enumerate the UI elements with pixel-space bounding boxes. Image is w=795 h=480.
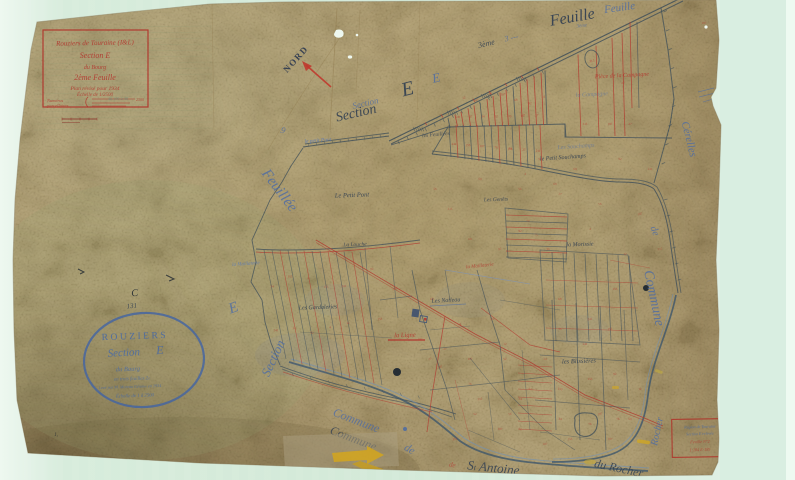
svg-text:2ème Feuille: 2ème Feuille	[74, 73, 116, 82]
svg-text:du Bourg: du Bourg	[84, 65, 106, 71]
svg-text:40-100-2-48: 40-100-2-48	[108, 96, 128, 101]
svg-text:241: 241	[648, 167, 653, 171]
svg-text:153: 153	[567, 437, 572, 441]
svg-text:la Morissie: la Morissie	[566, 242, 594, 249]
svg-text:315: 315	[583, 122, 588, 126]
svg-text:1:184 E-185: 1:184 E-185	[689, 447, 710, 453]
svg-text:187: 187	[608, 122, 613, 126]
svg-text:27: 27	[522, 148, 526, 152]
svg-text:315: 315	[448, 207, 453, 211]
svg-text:315: 315	[657, 247, 663, 251]
svg-text:2500: 2500	[136, 97, 144, 102]
svg-text:les Blissières: les Blissières	[562, 357, 597, 365]
svg-text:la Ligne: la Ligne	[394, 332, 416, 340]
svg-text:187: 187	[608, 437, 614, 441]
svg-text:92: 92	[473, 412, 477, 416]
svg-text:Section: Section	[107, 346, 140, 360]
svg-text:153: 153	[607, 327, 613, 332]
svg-text:187: 187	[520, 113, 526, 118]
svg-text:241: 241	[452, 142, 457, 146]
svg-text:E: E	[155, 343, 165, 357]
svg-text:68: 68	[553, 182, 557, 186]
svg-text:Section E relevée: Section E relevée	[686, 431, 714, 437]
svg-text:153: 153	[465, 143, 470, 147]
svg-text:68: 68	[468, 237, 472, 241]
svg-text:du Bourg: du Bourg	[116, 366, 141, 374]
svg-text:de: de	[448, 461, 456, 470]
svg-text:241: 241	[456, 115, 462, 120]
svg-text:Rouziers de Touraine (I&L): Rouziers de Touraine (I&L)	[55, 38, 135, 47]
svg-text:parcellaires: parcellaires	[46, 103, 69, 108]
svg-text:153: 153	[613, 287, 618, 291]
svg-text:131: 131	[126, 302, 137, 311]
svg-text:241: 241	[273, 328, 278, 332]
svg-text:Plan révisé pour 1934: Plan révisé pour 1934	[69, 85, 119, 92]
svg-text:187: 187	[597, 412, 603, 416]
svg-text:153: 153	[588, 377, 593, 381]
svg-text:241: 241	[583, 342, 588, 346]
svg-text:Section E: Section E	[80, 51, 111, 60]
svg-text:187: 187	[498, 427, 503, 431]
svg-text:76: 76	[468, 382, 472, 386]
svg-text:315: 315	[452, 437, 458, 442]
svg-text:Feuille N°2: Feuille N°2	[689, 439, 710, 445]
svg-text:315: 315	[589, 59, 595, 64]
svg-text:Le Petit Pont: Le Petit Pont	[334, 191, 370, 199]
svg-text:27: 27	[443, 347, 447, 351]
svg-text:187: 187	[480, 144, 485, 148]
svg-text:241: 241	[536, 149, 541, 153]
svg-text:315: 315	[507, 114, 513, 119]
svg-text:153: 153	[377, 317, 383, 322]
svg-text:187: 187	[702, 21, 707, 25]
svg-text:187: 187	[437, 365, 443, 370]
svg-text:92: 92	[528, 101, 532, 105]
svg-text:187: 187	[501, 92, 506, 96]
svg-text:12: 12	[623, 252, 627, 256]
svg-text:34: 34	[481, 114, 485, 118]
svg-text:153: 153	[508, 147, 513, 151]
svg-text:27: 27	[621, 81, 625, 85]
svg-text:153: 153	[288, 275, 293, 279]
svg-text:187: 187	[543, 442, 548, 446]
svg-text:56: 56	[558, 327, 562, 331]
svg-text:315: 315	[477, 397, 483, 401]
svg-text:Les Genêts: Les Genêts	[483, 197, 508, 204]
svg-text:92: 92	[518, 229, 522, 233]
svg-text:56: 56	[508, 412, 512, 416]
svg-text:34: 34	[490, 317, 494, 321]
svg-text:La Louche: La Louche	[342, 242, 367, 249]
svg-text:1,: 1,	[54, 433, 58, 438]
